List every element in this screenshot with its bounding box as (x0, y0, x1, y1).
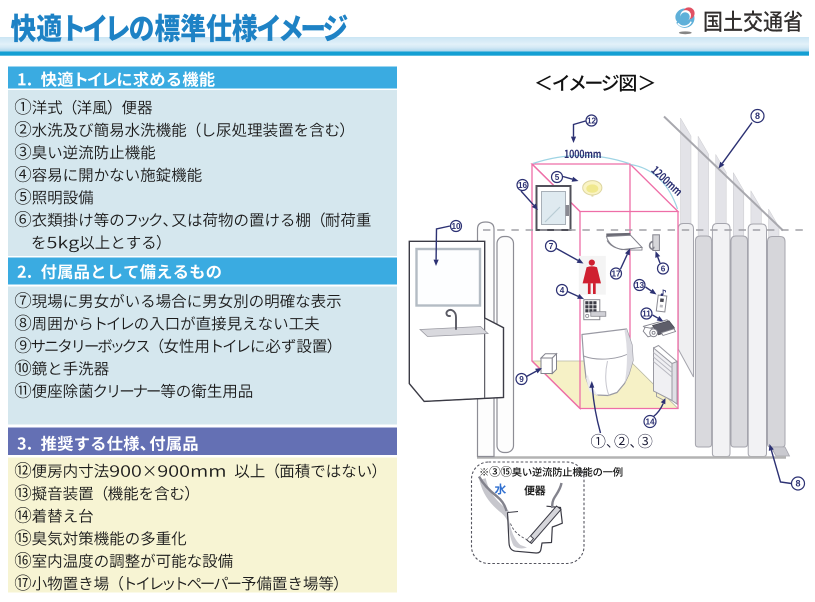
svg-text:11: 11 (642, 309, 651, 318)
svg-text:5: 5 (555, 173, 560, 182)
svg-text:10: 10 (451, 222, 461, 231)
svg-text:9: 9 (519, 375, 524, 384)
svg-text:4: 4 (560, 286, 565, 295)
svg-text:16: 16 (518, 181, 528, 190)
svg-text:7: 7 (549, 242, 554, 251)
svg-text:12: 12 (587, 116, 597, 125)
svg-text:8: 8 (755, 111, 760, 121)
svg-text:17: 17 (611, 269, 621, 278)
svg-text:13: 13 (635, 281, 645, 290)
svg-text:14: 14 (645, 417, 655, 426)
svg-text:6: 6 (661, 264, 666, 273)
svg-text:8: 8 (795, 479, 800, 489)
